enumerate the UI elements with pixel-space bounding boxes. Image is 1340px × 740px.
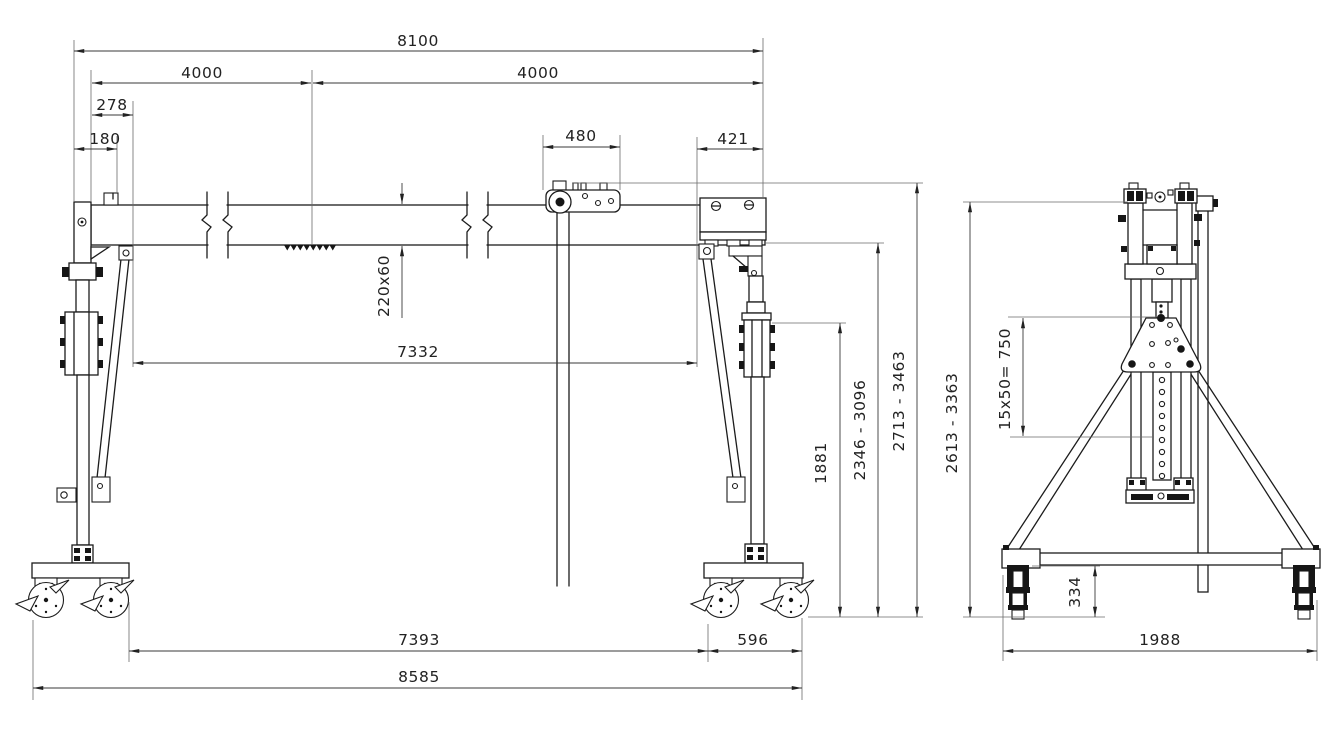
serrated-strip xyxy=(284,245,336,251)
a-frame-leg xyxy=(1004,370,1124,553)
mast-clamp xyxy=(65,312,98,375)
dim-span-half-right: 4000 xyxy=(313,64,763,83)
clamp-collar xyxy=(69,263,96,280)
dim-label: 278 xyxy=(96,96,127,114)
dim-base-width: 1988 xyxy=(1003,631,1317,651)
dim-label: 596 xyxy=(737,631,768,649)
column-top xyxy=(74,202,91,263)
hoist-bracket xyxy=(729,246,762,256)
dim-endstop-offset: 180 xyxy=(74,130,121,149)
a-frame-leg xyxy=(1017,368,1135,553)
dim-underbeam-height-range: 2346 - 3096 xyxy=(851,243,878,617)
end-stop xyxy=(104,193,118,205)
brace-foot xyxy=(727,477,745,502)
dim-label: 334 xyxy=(1066,576,1084,607)
dim-inner-span: 7332 xyxy=(133,343,697,363)
dim-label: 220x60 xyxy=(375,255,393,317)
dim-label: 8585 xyxy=(398,668,440,686)
dim-span-half-left: 4000 xyxy=(92,64,311,83)
mast-clamp xyxy=(744,320,770,377)
dim-brace-offset: 278 xyxy=(92,96,133,115)
dim-label: 15x50= 750 xyxy=(996,328,1014,430)
dim-label: 4000 xyxy=(181,64,223,82)
diagonal-brace xyxy=(703,259,733,478)
front-view xyxy=(16,181,814,618)
technical-drawing: 8100 4000 4000 278 180 480 421 2 xyxy=(0,0,1340,740)
right-leg xyxy=(691,198,814,618)
inner-mast xyxy=(751,377,764,544)
base-plate xyxy=(32,563,129,578)
dim-label: 1988 xyxy=(1139,631,1181,649)
caster-side xyxy=(1006,565,1030,619)
dim-beam-profile: 220x60 xyxy=(375,183,402,318)
dim-mast-clamp-height: 1881 xyxy=(812,323,840,617)
caster xyxy=(16,578,69,618)
inner-mast xyxy=(77,375,89,545)
dim-side-height-range: 2613 - 3363 xyxy=(943,202,970,617)
beam xyxy=(91,192,765,258)
dim-leg-wheel-spread: 596 xyxy=(708,631,802,651)
end-carriage xyxy=(700,198,766,232)
base-plate xyxy=(704,563,803,578)
dim-carriage-length: 421 xyxy=(697,130,763,149)
base-beam xyxy=(1005,553,1317,565)
dim-label: 180 xyxy=(89,130,120,148)
dim-label: 7332 xyxy=(397,343,439,361)
dim-trolley-length: 480 xyxy=(543,127,620,147)
dim-overall-top: 8100 xyxy=(74,32,763,51)
mast-guide xyxy=(1131,279,1141,479)
brace-foot xyxy=(92,477,110,502)
dim-inner-wheel-span: 7393 xyxy=(129,631,708,651)
dim-label: 480 xyxy=(565,127,596,145)
dim-overall-bottom: 8585 xyxy=(33,668,802,688)
mast-guide xyxy=(1181,279,1191,479)
gusset xyxy=(91,247,109,259)
dim-label: 1881 xyxy=(812,442,830,484)
dim-label: 2713 - 3463 xyxy=(890,351,908,452)
a-frame-leg xyxy=(1198,370,1318,553)
caster xyxy=(691,578,744,618)
dim-label: 2346 - 3096 xyxy=(851,380,869,481)
dim-label: 421 xyxy=(717,130,748,148)
caster xyxy=(761,578,814,618)
dim-overall-height-range: 2713 - 3463 xyxy=(890,183,917,617)
caster-side xyxy=(1292,565,1316,619)
left-leg xyxy=(16,202,134,618)
clamp-flange xyxy=(742,313,771,320)
dim-label: 4000 xyxy=(517,64,559,82)
dim-label: 8100 xyxy=(397,32,439,50)
dim-label: 2613 - 3363 xyxy=(943,373,961,474)
dim-caster-height: 334 xyxy=(1066,566,1095,617)
beam-end-profile xyxy=(1198,210,1208,592)
dim-label: 7393 xyxy=(398,631,440,649)
caster xyxy=(81,578,134,618)
diagonal-brace xyxy=(711,259,741,478)
side-view xyxy=(1002,183,1320,619)
dim-hole-pattern: 15x50= 750 xyxy=(996,318,1023,436)
